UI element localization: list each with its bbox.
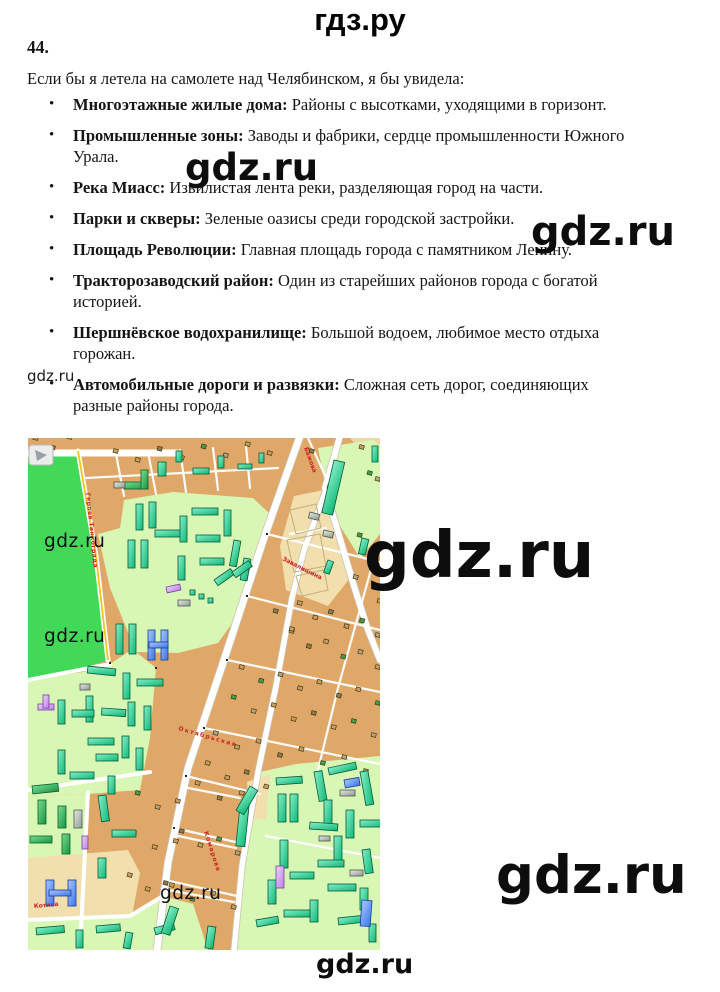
site-logo: гдз.ру xyxy=(0,2,720,38)
term-label: Шершнёвское водохранилище: xyxy=(73,323,307,342)
list-item: Многоэтажные жилые дома: Районы с высотк… xyxy=(27,94,633,115)
list-item: Река Миасс: Извилистая лента реки, разде… xyxy=(27,177,633,198)
list-item: Промышленные зоны: Заводы и фабрики, сер… xyxy=(27,125,633,167)
term-label: Парки и скверы: xyxy=(73,209,201,228)
term-label: Автомобильные дороги и развязки: xyxy=(73,375,340,394)
term-label: Многоэтажные жилые дома: xyxy=(73,95,288,114)
city-map-image: Бажова Завалишина Октябрьская Комарова К… xyxy=(28,438,380,950)
city-map: Бажова Завалишина Октябрьская Комарова К… xyxy=(28,438,380,950)
watermark: gdz.ru xyxy=(364,524,594,588)
term-description: Зеленые оазисы среди городской застройки… xyxy=(205,209,515,228)
term-description: Главная площадь города с памятником Лени… xyxy=(241,240,572,259)
map-control-icon xyxy=(29,445,53,465)
term-label: Площадь Революции: xyxy=(73,240,237,259)
watermark-footer: gdz.ru xyxy=(316,951,413,978)
term-label: Река Миасс: xyxy=(73,178,165,197)
intro-text: Если бы я летела на самолете над Челябин… xyxy=(27,69,464,89)
watermark: gdz.ru xyxy=(185,149,318,186)
problem-number: 44. xyxy=(27,37,49,58)
watermark: gdz.ru xyxy=(44,628,105,647)
watermark: gdz.ru xyxy=(44,533,105,552)
term-label: Промышленные зоны: xyxy=(73,126,244,145)
list-item: Автомобильные дороги и развязки: Сложная… xyxy=(27,374,633,416)
term-label: Тракторозаводский район: xyxy=(73,271,274,290)
answer-page: гдз.ру 44. Если бы я летела на самолете … xyxy=(0,0,720,992)
watermark: gdz.ru xyxy=(27,369,74,384)
term-description: Районы с высотками, уходящими в горизонт… xyxy=(292,95,607,114)
watermark: gdz.ru xyxy=(160,885,221,904)
list-item: Тракторозаводский район: Один из старейш… xyxy=(27,270,633,312)
watermark: gdz.ru xyxy=(496,849,687,902)
list-item: Шершнёвское водохранилище: Большой водое… xyxy=(27,322,633,364)
answer-list: Многоэтажные жилые дома: Районы с высотк… xyxy=(27,94,633,426)
watermark: gdz.ru xyxy=(531,212,675,252)
